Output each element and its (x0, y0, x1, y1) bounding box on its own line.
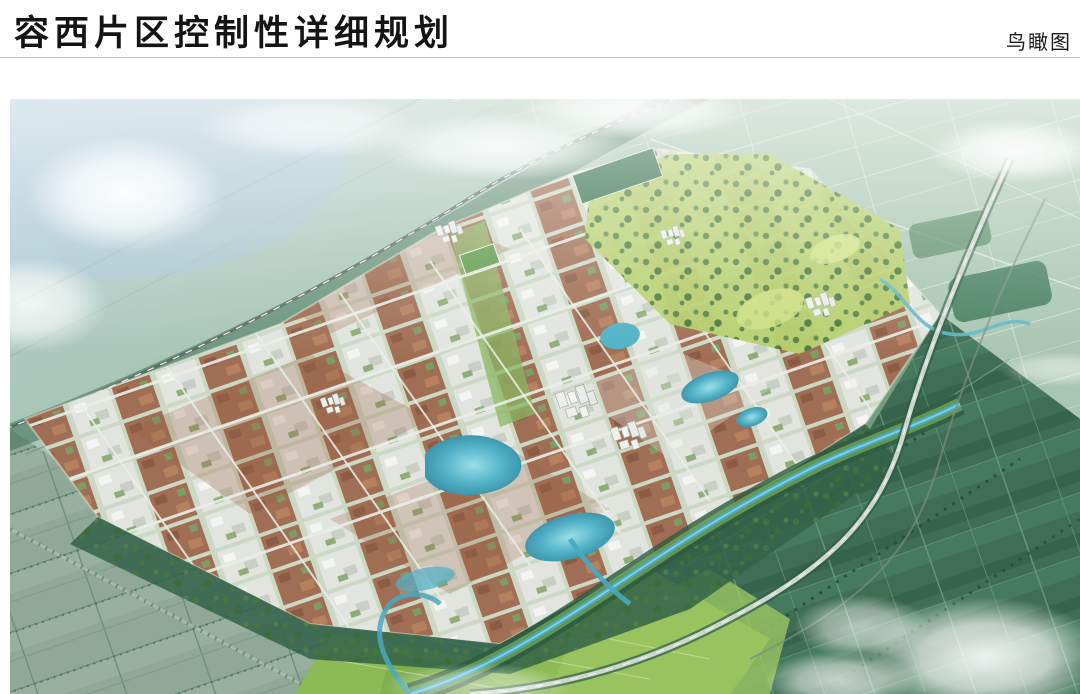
view-label: 鸟瞰图 (1006, 26, 1072, 55)
aerial-rendering (10, 99, 1080, 694)
page-title: 容西片区控制性详细规划 (14, 5, 454, 56)
page: 容西片区控制性详细规划 鸟瞰图 (0, 0, 1080, 694)
aerial-scene (10, 99, 1080, 694)
header-divider (0, 57, 1080, 58)
